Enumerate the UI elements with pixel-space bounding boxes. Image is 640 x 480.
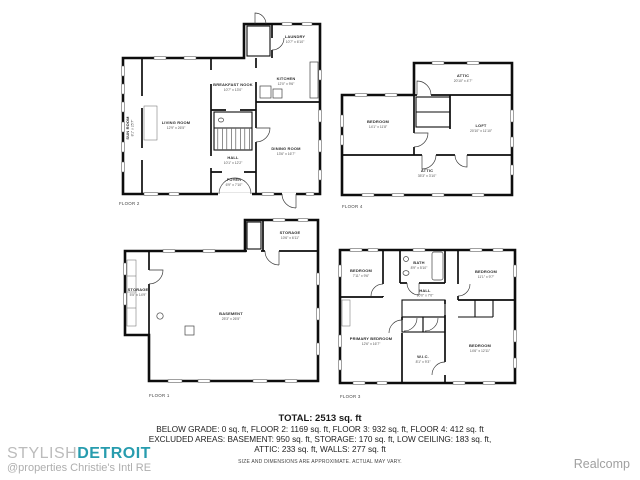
floor-areas-line: BELOW GRADE: 0 sq. ft, FLOOR 2: 1169 sq.… [0, 425, 640, 435]
brand-subtitle: @properties Christie's Intl RE [7, 462, 151, 474]
svg-text:14'6" x 12'11": 14'6" x 12'11" [470, 349, 491, 353]
floor-plan-floor-4: ATTIC 20'10" x 4'7" BEDROOM 14'1" x 11'8… [337, 55, 527, 215]
svg-text:10'6" x 6'11": 10'6" x 6'11" [281, 236, 300, 240]
brand-logo-light: STYLISH [7, 445, 77, 462]
outer-walls [123, 24, 320, 194]
svg-text:10'7" x 6'10": 10'7" x 6'10" [286, 40, 305, 44]
svg-text:DINING ROOM: DINING ROOM [271, 146, 301, 151]
svg-text:BEDROOM: BEDROOM [475, 269, 497, 274]
svg-text:11'1" x 9'7": 11'1" x 9'7" [478, 275, 495, 279]
svg-text:35'3" x 3'10": 35'3" x 3'10" [418, 174, 437, 178]
svg-text:20'10" x 11'10": 20'10" x 11'10" [470, 129, 493, 133]
svg-text:25'3" x 26'5": 25'3" x 26'5" [222, 317, 241, 321]
floor-plan-floor-2: SUN ROOM 8'1" x 25'7" LIVING ROOM 12'9" … [114, 10, 329, 210]
svg-text:SUN ROOM: SUN ROOM [125, 116, 130, 140]
svg-text:8'1" x 9'3": 8'1" x 9'3" [416, 360, 432, 364]
svg-text:STORAGE: STORAGE [280, 230, 301, 235]
svg-text:FOYER: FOYER [227, 177, 242, 182]
svg-text:6'9" x 7'10": 6'9" x 7'10" [226, 183, 244, 187]
svg-text:ATTIC: ATTIC [457, 73, 469, 78]
floor-label: FLOOR 1 [149, 393, 170, 398]
svg-text:BREAKFAST NOOK: BREAKFAST NOOK [213, 82, 253, 87]
svg-text:10'7" x 13'0": 10'7" x 13'0" [224, 88, 243, 92]
svg-text:13'6" x 16'7": 13'6" x 16'7" [277, 152, 296, 156]
svg-text:10'1" x 12'2": 10'1" x 12'2" [224, 161, 243, 165]
mls-watermark: Realcomp [574, 457, 630, 471]
svg-text:7'11" x 9'6": 7'11" x 9'6" [353, 274, 370, 278]
svg-text:PRIMARY BEDROOM: PRIMARY BEDROOM [350, 336, 393, 341]
floor-plan-floor-1: STORAGE 5'5" x 14'9" BASEMENT 25'3" x 26… [113, 218, 323, 408]
floor-label: FLOOR 2 [119, 201, 140, 206]
svg-text:ATTIC: ATTIC [421, 168, 433, 173]
svg-text:10'0" x 7'0": 10'0" x 7'0" [417, 294, 435, 298]
floorplan-sheet: SUN ROOM 8'1" x 25'7" LIVING ROOM 12'9" … [0, 0, 640, 480]
svg-text:KITCHEN: KITCHEN [277, 76, 296, 81]
svg-text:12'0" x 9'6": 12'0" x 9'6" [278, 82, 296, 86]
svg-text:STORAGE: STORAGE [128, 287, 149, 292]
floor-label: FLOOR 4 [342, 204, 363, 209]
svg-text:BEDROOM: BEDROOM [350, 268, 372, 273]
svg-text:BATH: BATH [413, 260, 424, 265]
svg-text:20'10" x 4'7": 20'10" x 4'7" [454, 79, 473, 83]
svg-text:LAUNDRY: LAUNDRY [285, 34, 306, 39]
floor-plan-floor-3: BEDROOM 7'11" x 9'6" BATH 8'9" x 5'10" B… [335, 240, 530, 410]
svg-text:BEDROOM: BEDROOM [469, 343, 491, 348]
svg-text:12'9" x 26'5": 12'9" x 26'5" [167, 126, 186, 130]
svg-text:BASEMENT: BASEMENT [219, 311, 243, 316]
brand-logo: STYLISHDETROIT [7, 446, 151, 462]
excluded-areas-line: EXCLUDED AREAS: BASEMENT: 950 sq. ft, ST… [0, 435, 640, 445]
svg-text:HALL: HALL [227, 155, 239, 160]
svg-text:12'6" x 16'7": 12'6" x 16'7" [362, 342, 381, 346]
total-area: TOTAL: 2513 sq. ft [0, 413, 640, 424]
svg-text:5'5" x 14'9": 5'5" x 14'9" [130, 293, 148, 297]
brand-logo-bold: DETROIT [77, 445, 151, 462]
svg-text:8'1" x 25'7": 8'1" x 25'7" [131, 119, 135, 137]
svg-text:LOFT: LOFT [475, 123, 486, 128]
svg-text:8'9" x 5'10": 8'9" x 5'10" [411, 266, 429, 270]
outer-walls [125, 220, 318, 381]
photographer-brand: STYLISHDETROIT @properties Christie's In… [7, 446, 151, 474]
svg-text:LIVING ROOM: LIVING ROOM [162, 120, 191, 125]
svg-text:14'1" x 11'8": 14'1" x 11'8" [369, 125, 388, 129]
svg-text:HALL: HALL [419, 288, 431, 293]
floor-label: FLOOR 3 [340, 394, 361, 399]
svg-text:W.I.C.: W.I.C. [417, 354, 429, 359]
svg-text:BEDROOM: BEDROOM [367, 119, 389, 124]
